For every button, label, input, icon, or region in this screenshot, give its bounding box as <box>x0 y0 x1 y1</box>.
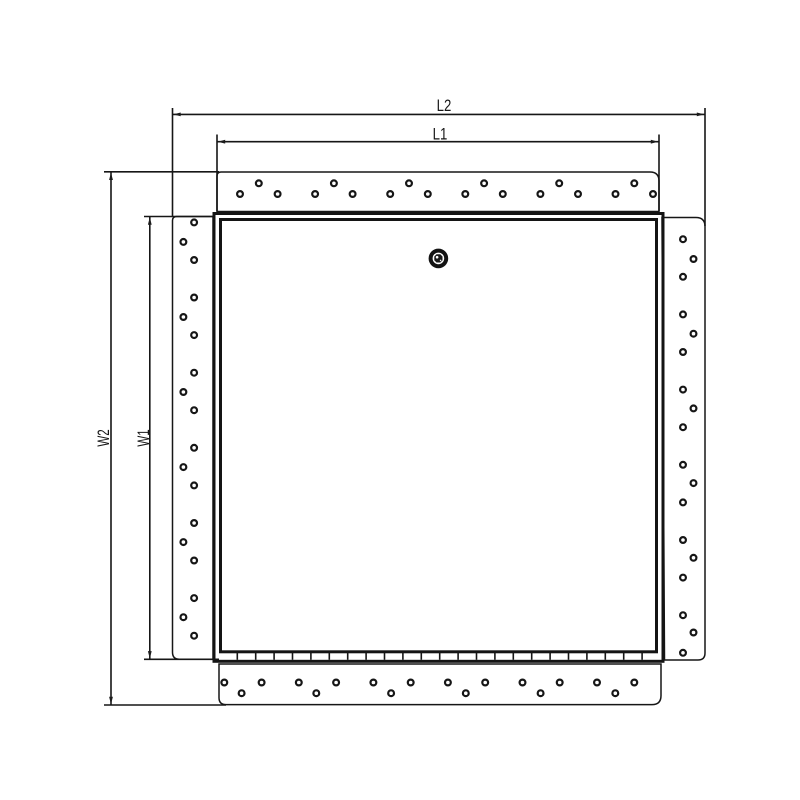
svg-text:W2: W2 <box>95 429 114 446</box>
svg-text:L2: L2 <box>437 97 452 116</box>
svg-text:W1: W1 <box>135 429 154 446</box>
svg-text:L1: L1 <box>433 125 448 144</box>
